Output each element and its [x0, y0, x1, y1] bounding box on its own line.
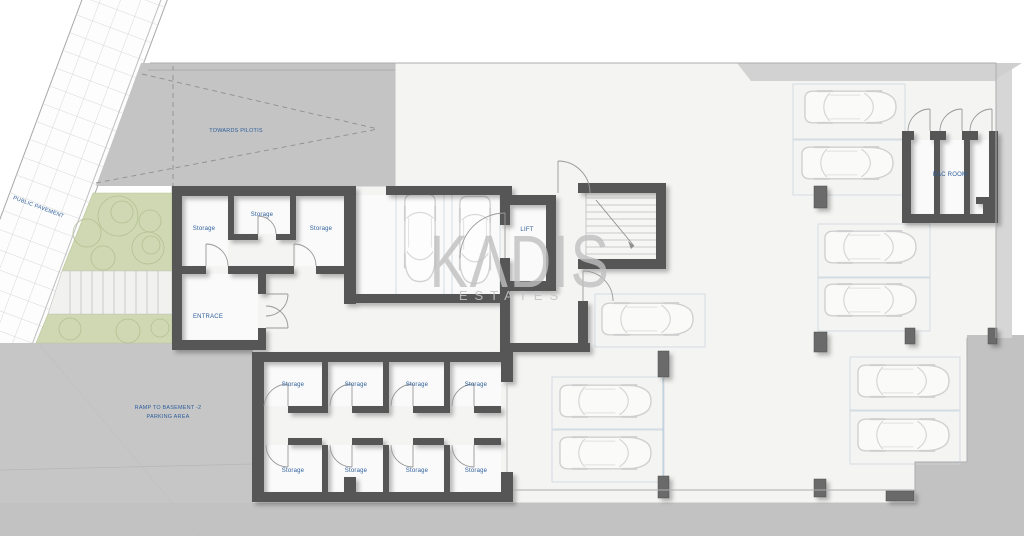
label-storage: Storage [282, 382, 305, 388]
floor-plan-canvas: PUBLIC PAVEMENT [0, 0, 1024, 536]
label-towards-pilotis: TOWARDS PILOTIS [209, 128, 263, 134]
label-storage: Storage [345, 382, 368, 388]
car-icon [802, 147, 893, 179]
label-storage: Storage [465, 468, 488, 474]
label-ramp-line2: PARKING AREA [147, 414, 190, 420]
pilotis-area [96, 63, 395, 186]
label-storage: Storage [345, 468, 368, 474]
car-icon [602, 303, 693, 335]
car-icon [805, 91, 896, 123]
label-storage: Storage [465, 382, 488, 388]
label-storage: Storage [282, 468, 305, 474]
green-bed-lower [36, 314, 172, 343]
label-storage: Storage [251, 212, 274, 218]
label-storage: Storage [310, 226, 333, 232]
label-entrance: ENTRACE [193, 314, 223, 320]
boundary-band-top [737, 63, 996, 81]
watermark: KΛDIS ESTATES [429, 221, 610, 304]
label-storage: Storage [406, 468, 429, 474]
car-icon [858, 365, 949, 397]
watermark-subtitle: ESTATES [459, 288, 565, 303]
floor-plan-drawing: PUBLIC PAVEMENT [0, 0, 1024, 536]
car-icon [825, 284, 916, 316]
car-icon [560, 385, 651, 417]
label-storage: Storage [193, 226, 216, 232]
label-storage: Storage [406, 382, 429, 388]
label-ramp-line1: RAMP TO BASEMENT -2 [135, 405, 202, 411]
car-icon [858, 419, 949, 451]
car-icon [825, 231, 916, 263]
label-eac-room: EAC ROOM [933, 172, 967, 178]
outdoor-bottom [0, 503, 1024, 536]
external-stairs [48, 271, 172, 314]
boundary-strip-right [996, 63, 1012, 338]
car-icon [560, 437, 651, 469]
label-lift: LIFT [520, 227, 533, 233]
